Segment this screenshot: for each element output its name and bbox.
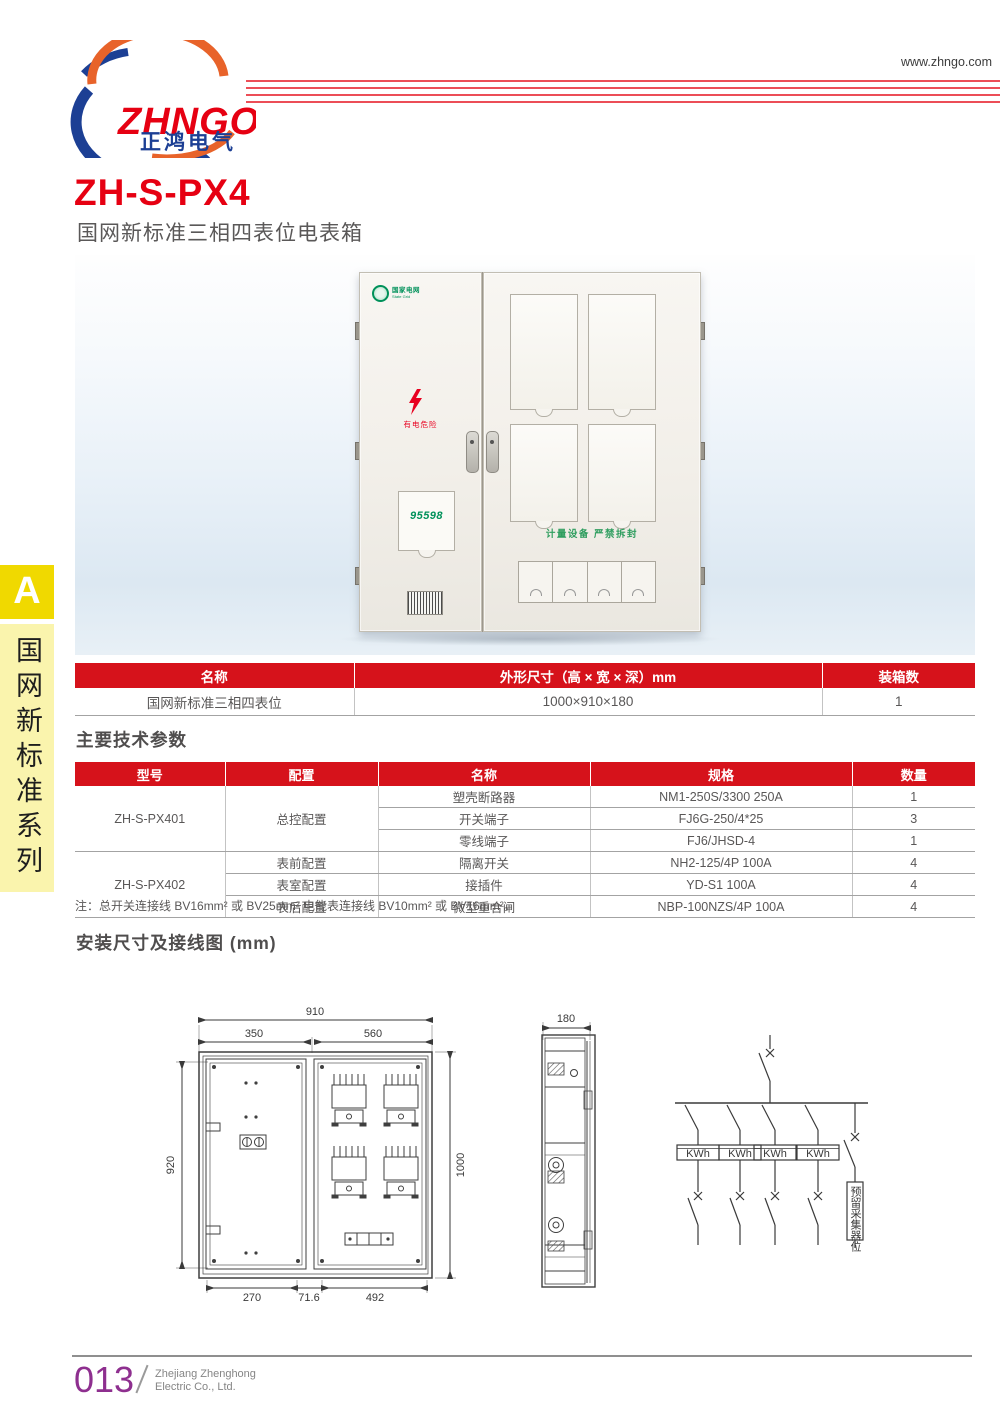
config-cell: 总控配置: [225, 786, 378, 852]
table-cell: FJ6G-250/4*25: [590, 808, 852, 830]
reserved-branch: 预留采集器位: [844, 1103, 863, 1252]
table-row: ZH-S-PX402 表前配置 隔离开关 NH2-125/4P 100A 4: [75, 852, 975, 874]
meter-box: 国家电网 State Grid 有电危险 95598: [359, 272, 701, 632]
meter-branch: KWh: [754, 1105, 796, 1245]
dim-71-6: 71.6: [298, 1292, 319, 1304]
dim-920: 920: [165, 1156, 177, 1174]
table-cell: NH2-125/4P 100A: [590, 852, 852, 874]
col-header: 装箱数: [822, 663, 975, 688]
table-cell: YD-S1 100A: [590, 874, 852, 896]
header-rule-line: [246, 94, 1000, 96]
breaker-window-strip: [518, 561, 656, 603]
meter-window: [588, 294, 656, 410]
header-rule-line: [246, 80, 1000, 82]
product-photo-panel: 国家电网 State Grid 有电危险 95598: [75, 255, 975, 655]
page-number: 013: [74, 1359, 134, 1401]
table-cell: NM1-250S/3300 250A: [590, 786, 852, 808]
col-header: 配置: [225, 762, 378, 786]
meter-branch: KWh: [797, 1105, 839, 1245]
kwh-label: KWh: [763, 1148, 787, 1160]
seal-warning-label: 计量设备 严禁拆封: [484, 526, 700, 540]
lightning-bolt-icon: [408, 389, 423, 415]
side-view-drawing: 180: [542, 1013, 595, 1287]
table-cell: 3: [852, 808, 975, 830]
window-notch: [418, 550, 436, 558]
dim-910: 910: [306, 1006, 324, 1018]
box-shadow: [337, 632, 723, 646]
service-window: 95598: [398, 491, 455, 551]
logo-chinese-name: 正鸿电气: [140, 126, 236, 156]
model-cell: ZH-S-PX401: [75, 786, 225, 852]
window-notch: [535, 409, 553, 417]
table-cell: 1000×910×180: [354, 688, 822, 716]
kwh-label: KWh: [806, 1148, 830, 1160]
dim-350: 350: [245, 1028, 263, 1040]
table-cell: 4: [852, 874, 975, 896]
table-cell: 国网新标准三相四表位: [75, 688, 354, 716]
breaker-window: [588, 562, 622, 602]
catalog-page: ZHNGO 正鸿电气 www.zhngo.com A 国网新标准系列 ZH-S-…: [0, 0, 1000, 1421]
wiring-note: 注：总开关连接线 BV16mm² 或 BV25mm² 电能表连接线 BV10mm…: [75, 897, 516, 914]
meter-window: [510, 294, 578, 410]
dim-270: 270: [243, 1292, 261, 1304]
col-header: 名称: [378, 762, 590, 786]
front-view-drawing: 910 350 560 920 1000 270 71.6 492: [165, 1006, 467, 1304]
kwh-label: KWh: [686, 1148, 710, 1160]
danger-label: 有电危险: [360, 419, 481, 430]
dim-492: 492: [366, 1292, 384, 1304]
col-header: 数量: [852, 762, 975, 786]
state-grid-en: State Grid: [392, 295, 417, 299]
table-cell: 开关端子: [378, 808, 590, 830]
table-row: ZH-S-PX401 总控配置 塑壳断路器 NM1-250S/3300 250A…: [75, 786, 975, 808]
dim-1000: 1000: [455, 1153, 467, 1177]
company-line1: Zhejiang Zhenghong: [155, 1368, 256, 1381]
breaker-window: [553, 562, 587, 602]
tech-table: 型号 配置 名称 规格 数量 ZH-S-PX401 总控配置 塑壳断路器 NM1…: [75, 762, 975, 918]
table-cell: FJ6/JHSD-4: [590, 830, 852, 852]
table-cell: 4: [852, 896, 975, 918]
table-cell: 接插件: [378, 874, 590, 896]
wiring-diagram: KWh KWh KWh: [675, 1035, 868, 1252]
table-cell: NBP-100NZS/4P 100A: [590, 896, 852, 918]
size-table: 名称 外形尺寸（高 × 宽 × 深）mm 装箱数 国网新标准三相四表位 1000…: [75, 663, 975, 716]
tech-section-heading: 主要技术参数: [76, 727, 187, 752]
sidebar-series-label: 国网新标准系列: [0, 624, 54, 892]
header-rule-line: [246, 101, 1000, 103]
footer-slash: [135, 1365, 148, 1393]
table-cell: 塑壳断路器: [378, 786, 590, 808]
table-cell: 1: [852, 786, 975, 808]
col-header: 名称: [75, 663, 354, 688]
page-subtitle: 国网新标准三相四表位电表箱: [77, 217, 363, 247]
state-grid-icon: [372, 285, 389, 302]
col-header: 型号: [75, 762, 225, 786]
meter-window: [588, 424, 656, 522]
window-notch: [613, 409, 631, 417]
service-number: 95598: [399, 510, 454, 522]
kwh-label: KWh: [728, 1148, 752, 1160]
table-cell: 4: [852, 852, 975, 874]
breaker-window: [519, 562, 553, 602]
footer-rule: [72, 1355, 972, 1357]
dim-180: 180: [557, 1013, 575, 1025]
table-row: 国网新标准三相四表位 1000×910×180 1: [75, 688, 975, 716]
company-line2: Electric Co., Ltd.: [155, 1381, 256, 1394]
state-grid-emblem: 国家电网 State Grid: [372, 285, 420, 302]
installation-drawings: 910 350 560 920 1000 270 71.6 492: [90, 995, 970, 1325]
table-cell: 1: [822, 688, 975, 716]
page-title: ZH-S-PX4: [74, 172, 251, 214]
dim-560: 560: [364, 1028, 382, 1040]
sidebar-section-letter: A: [0, 565, 54, 619]
config-cell: 表前配置: [225, 852, 378, 874]
breaker-window: [622, 562, 655, 602]
install-section-heading: 安装尺寸及接线图 (mm): [76, 930, 277, 955]
table-cell: 1: [852, 830, 975, 852]
barcode-label: [407, 591, 443, 615]
header-rule-line: [246, 87, 1000, 89]
meter-branch: KWh: [719, 1105, 761, 1245]
config-cell: 表室配置: [225, 874, 378, 896]
left-door: 国家电网 State Grid 有电危险 95598: [359, 272, 482, 632]
meter-window: [510, 424, 578, 522]
right-door: 计量设备 严禁拆封: [483, 272, 701, 632]
col-header: 外形尺寸（高 × 宽 × 深）mm: [354, 663, 822, 688]
website-url: www.zhngo.com: [901, 55, 992, 69]
door-lock-handle: [486, 431, 499, 473]
table-cell: 零线端子: [378, 830, 590, 852]
col-header: 规格: [590, 762, 852, 786]
company-name: Zhejiang Zhenghong Electric Co., Ltd.: [155, 1368, 256, 1394]
meter-branch: KWh: [677, 1105, 719, 1245]
door-lock-handle: [466, 431, 479, 473]
table-cell: 隔离开关: [378, 852, 590, 874]
